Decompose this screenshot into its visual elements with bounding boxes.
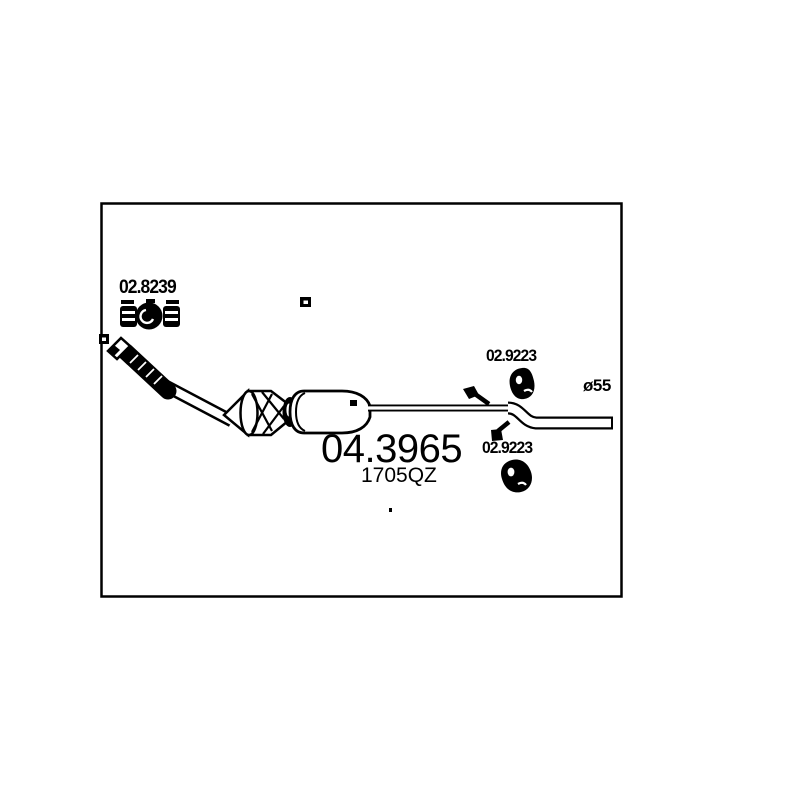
tail-pipe-end [508, 408, 613, 423]
marker-square-top [300, 297, 311, 307]
rubber-hanger-icon-bottom [501, 460, 532, 493]
hanger-pin-top [463, 386, 489, 404]
flex-joint [126, 352, 168, 391]
pipe-diameter-label: ø55 [583, 377, 611, 394]
clamp-part-number: 02.8239 [119, 278, 176, 297]
small-dot [389, 508, 392, 512]
catalytic-converter [224, 391, 298, 435]
pipe-clamp-icon [120, 299, 180, 330]
marker-square-left [99, 334, 109, 344]
main-part-number: 04.3965 [321, 429, 462, 469]
oe-reference-code: 1705QZ [361, 465, 437, 486]
exhaust-system-drawing [0, 0, 800, 800]
hanger-part-number-bottom: 02.9223 [482, 439, 532, 456]
hanger-part-number-top: 02.9223 [486, 347, 536, 364]
exhaust-part-diagram: 02.8239 02.9223 02.9223 ø55 04.3965 1705… [0, 0, 800, 800]
weld-nub [350, 400, 357, 406]
rubber-hanger-icon-top [510, 368, 535, 399]
